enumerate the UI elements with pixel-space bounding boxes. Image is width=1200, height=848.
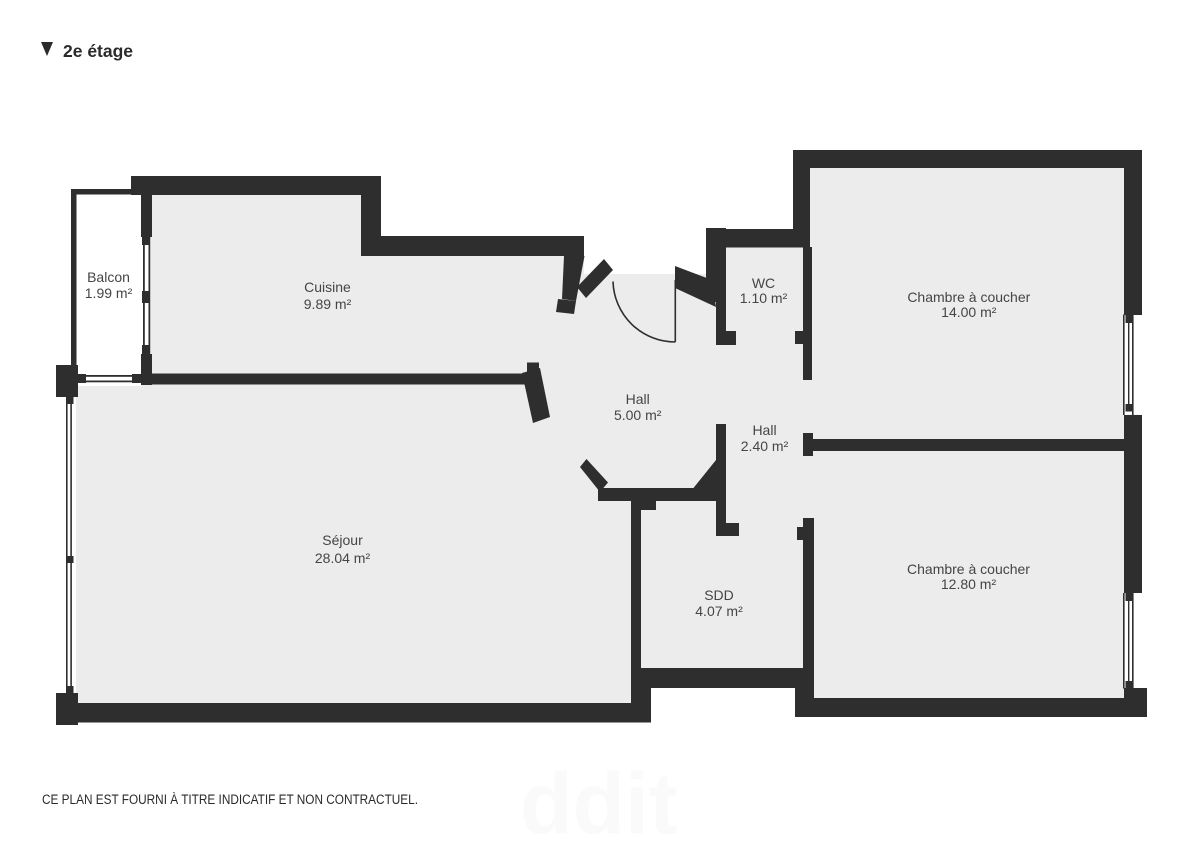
svg-text:Séjour: Séjour [322,532,363,548]
svg-text:Chambre à coucher: Chambre à coucher [907,289,1030,305]
svg-text:9.89 m²: 9.89 m² [304,296,352,312]
svg-text:Chambre à coucher: Chambre à coucher [907,561,1030,577]
svg-text:Hall: Hall [752,422,776,438]
svg-text:14.00 m²: 14.00 m² [941,304,997,320]
svg-text:28.04 m²: 28.04 m² [315,550,371,566]
svg-text:ddit: ddit [520,756,678,848]
svg-text:Cuisine: Cuisine [304,279,351,295]
svg-text:SDD: SDD [704,587,734,603]
svg-text:12.80 m²: 12.80 m² [941,576,997,592]
svg-text:5.00 m²: 5.00 m² [614,407,662,423]
svg-text:WC: WC [752,275,775,291]
svg-text:1.99 m²: 1.99 m² [85,285,133,301]
svg-text:2e étage: 2e étage [63,41,133,61]
svg-text:Hall: Hall [626,391,650,407]
svg-text:2.40 m²: 2.40 m² [741,438,789,454]
svg-text:Balcon: Balcon [87,269,130,285]
svg-text:CE PLAN EST FOURNI À TITRE IND: CE PLAN EST FOURNI À TITRE INDICATIF ET … [42,792,418,807]
svg-text:4.07 m²: 4.07 m² [695,603,743,619]
svg-text:1.10 m²: 1.10 m² [740,290,788,306]
